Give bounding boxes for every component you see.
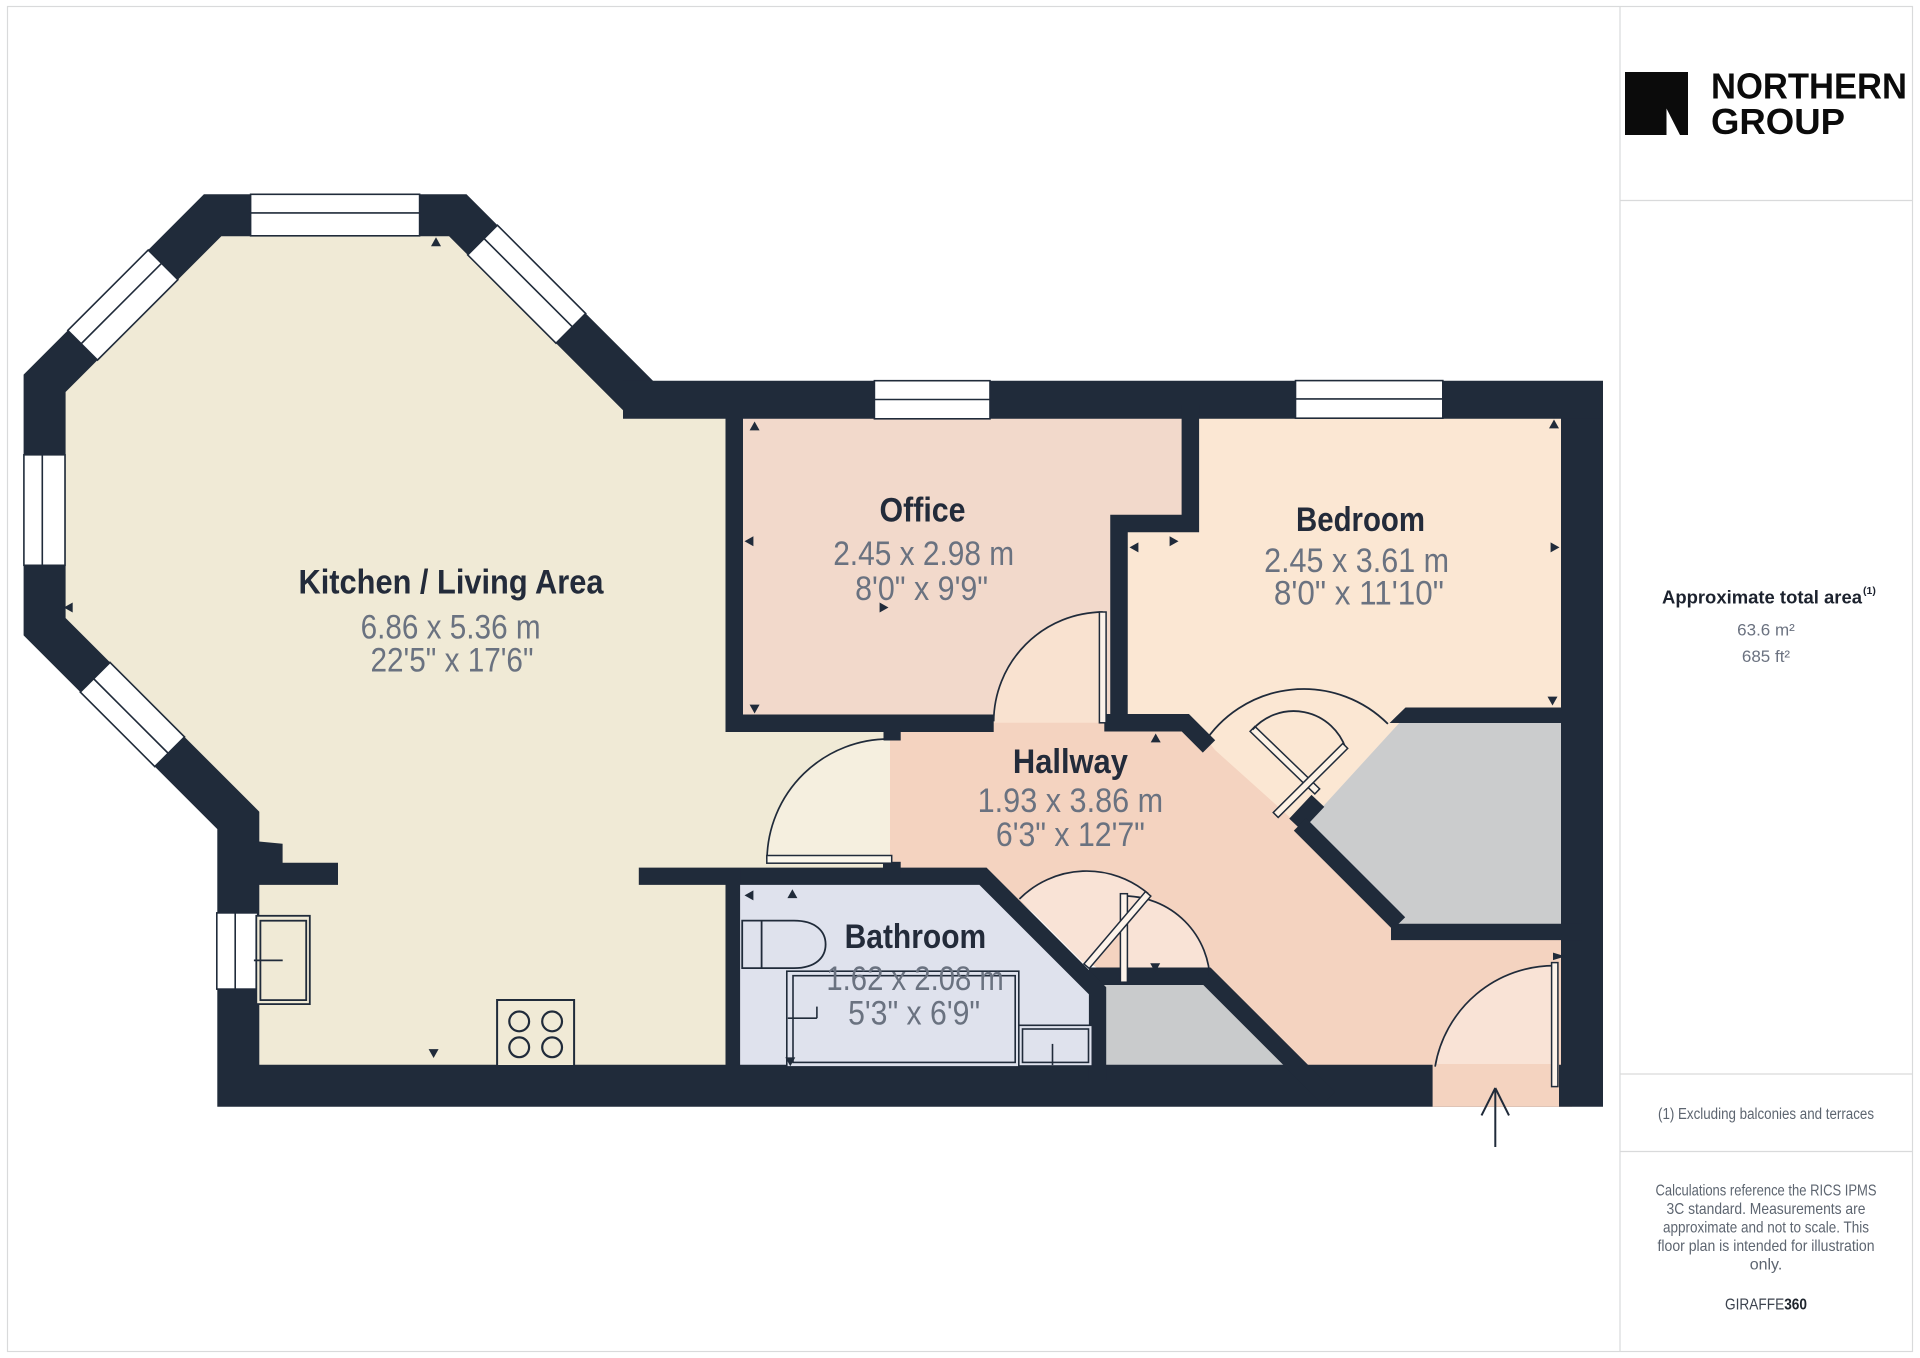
svg-text:63.6 m²: 63.6 m² [1737,621,1795,640]
svg-text:Office: Office [880,491,966,529]
svg-text:Kitchen / Living Area: Kitchen / Living Area [299,563,605,601]
svg-text:6'3" x 12'7": 6'3" x 12'7" [996,816,1145,854]
svg-text:3C standard. Measurements are: 3C standard. Measurements are [1667,1201,1866,1218]
svg-text:Calculations reference the RIC: Calculations reference the RICS IPMS [1656,1182,1877,1199]
svg-text:only.: only. [1750,1257,1783,1274]
svg-text:2.45 x 2.98 m: 2.45 x 2.98 m [833,535,1014,573]
svg-text:GIRAFFE360: GIRAFFE360 [1725,1296,1807,1313]
svg-text:5'3" x 6'9": 5'3" x 6'9" [848,995,980,1033]
svg-text:(1): (1) [1863,585,1876,597]
svg-text:685 ft²: 685 ft² [1742,647,1791,666]
svg-text:1.62 x 2.08 m: 1.62 x 2.08 m [826,960,1003,998]
svg-text:GROUP: GROUP [1711,101,1845,142]
svg-text:approximate and not to scale.: approximate and not to scale. This [1663,1220,1869,1237]
svg-text:8'0" x 9'9": 8'0" x 9'9" [855,570,988,608]
svg-text:22'5" x 17'6": 22'5" x 17'6" [371,641,534,679]
svg-text:floor plan is intended for ill: floor plan is intended for illustration [1658,1238,1875,1255]
svg-text:Bedroom: Bedroom [1296,501,1425,539]
svg-text:Approximate total area: Approximate total area [1662,588,1863,608]
svg-text:1.93 x 3.86 m: 1.93 x 3.86 m [978,782,1164,820]
svg-text:(1) Excluding balconies and te: (1) Excluding balconies and terraces [1658,1106,1874,1123]
svg-text:Bathroom: Bathroom [845,918,987,956]
svg-text:8'0" x 11'10": 8'0" x 11'10" [1274,574,1444,612]
svg-text:Hallway: Hallway [1013,743,1128,781]
